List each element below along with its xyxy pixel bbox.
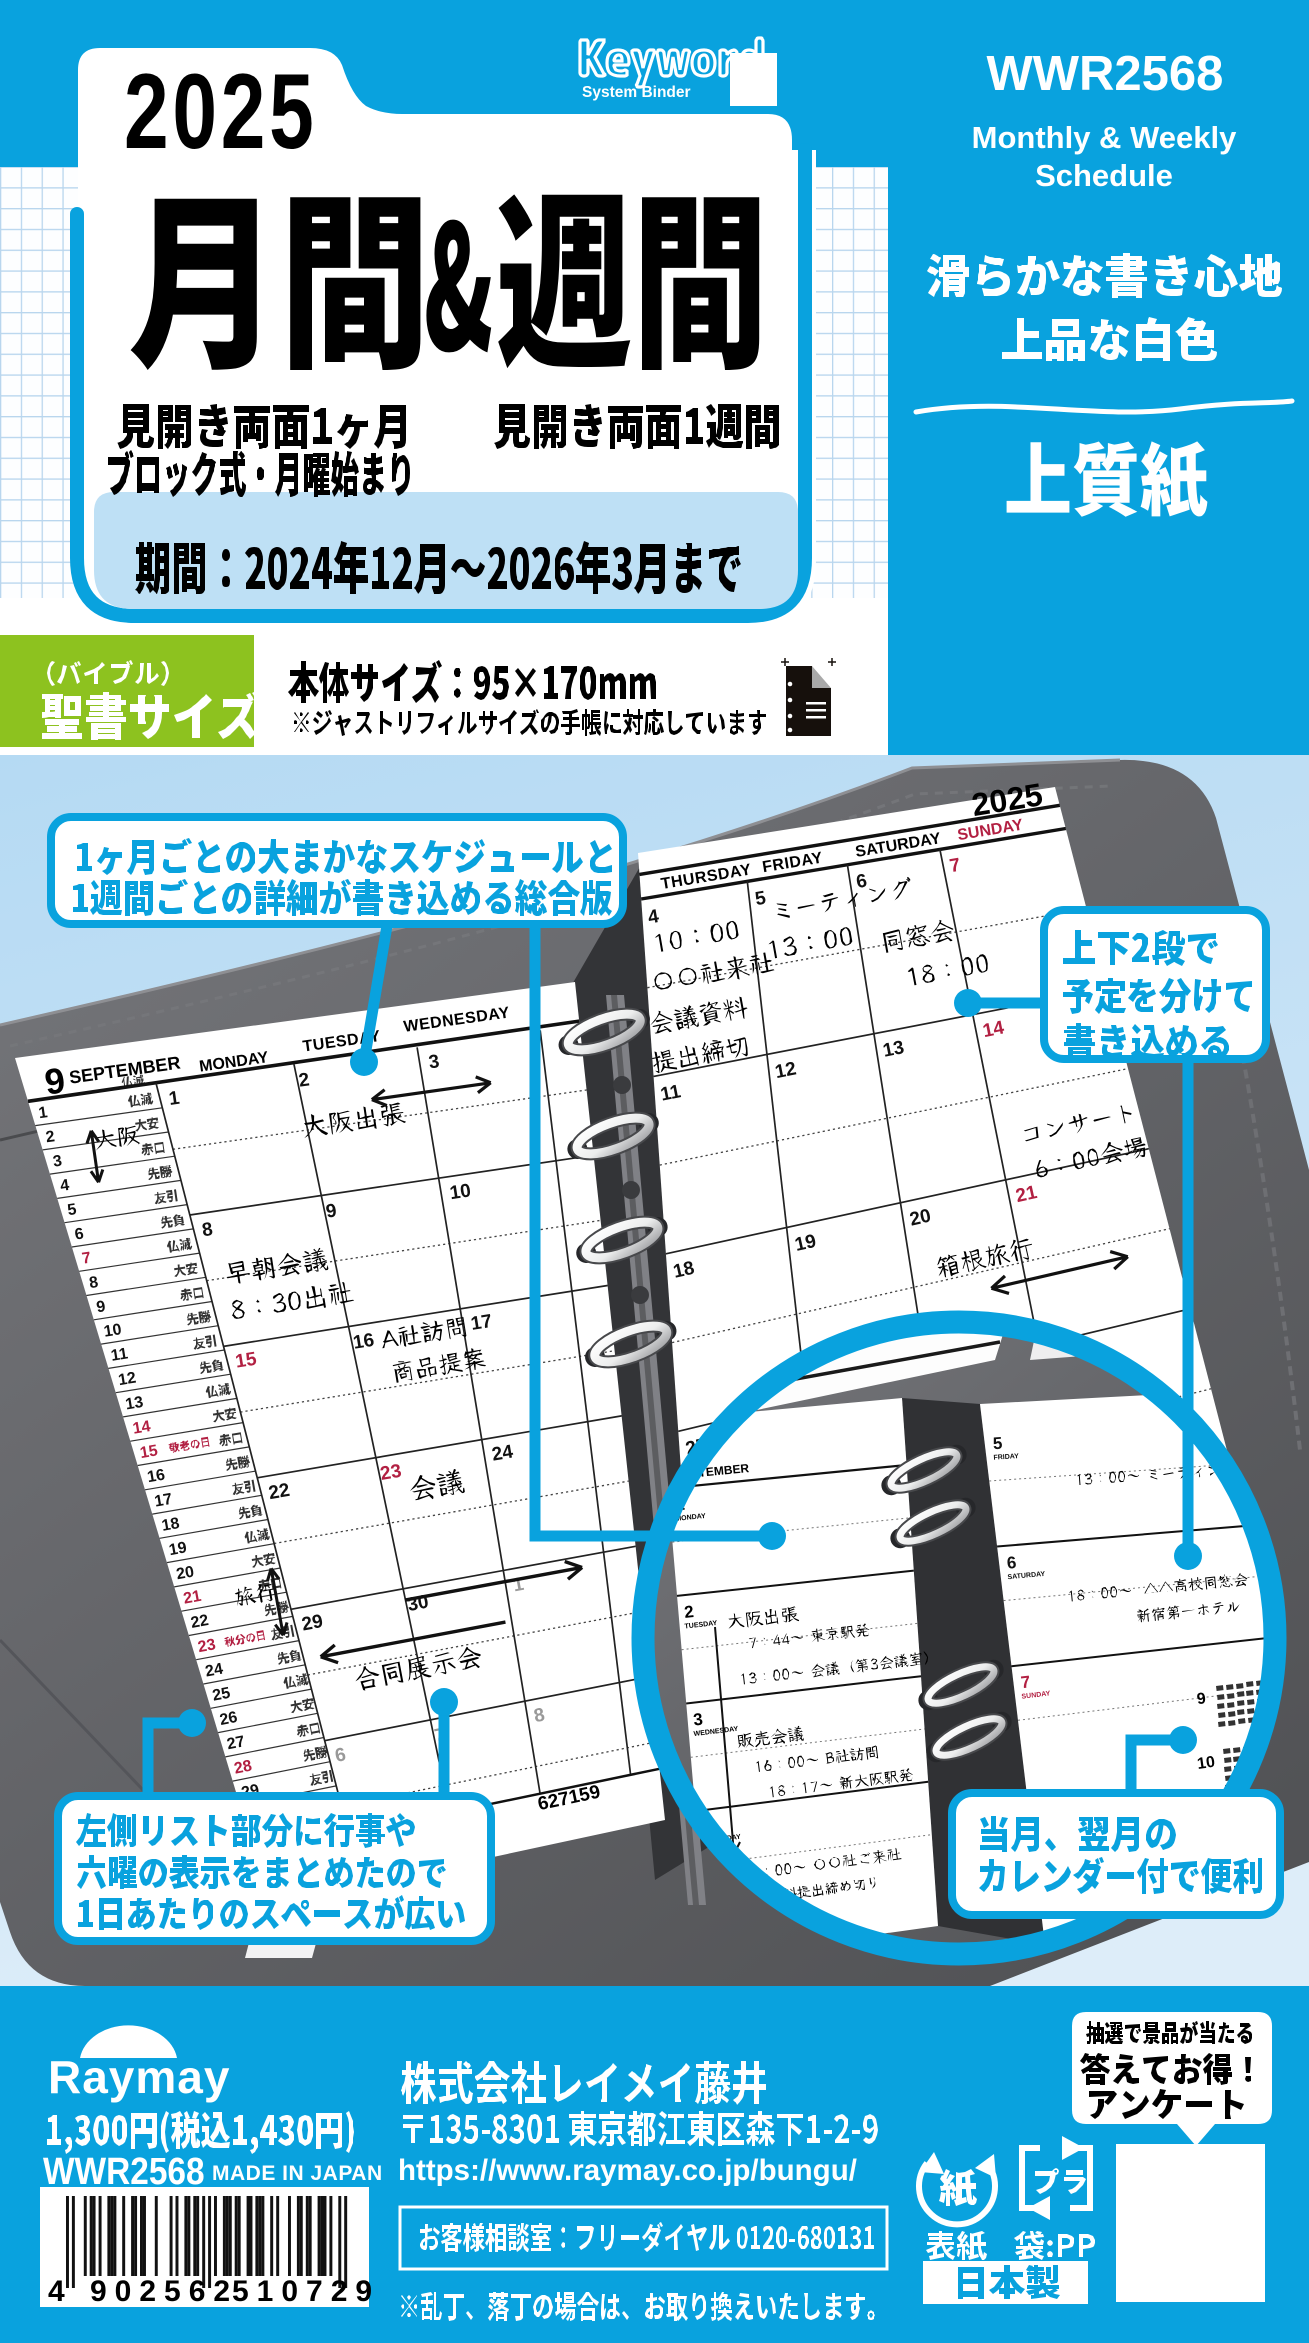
svg-text:21: 21 <box>182 1588 203 1608</box>
svg-text:4: 4 <box>48 2275 65 2308</box>
svg-text:17: 17 <box>153 1491 174 1511</box>
svg-text:13: 13 <box>124 1394 144 1414</box>
svg-text:29: 29 <box>300 1611 325 1635</box>
svg-text:2025: 2025 <box>124 52 318 172</box>
svg-text:22: 22 <box>189 1612 210 1632</box>
svg-text:16: 16 <box>352 1330 376 1354</box>
svg-text:Schedule: Schedule <box>1035 158 1173 193</box>
svg-text:15: 15 <box>139 1442 159 1462</box>
svg-text:Monthly & Weekly: Monthly & Weekly <box>972 120 1237 155</box>
svg-text:16: 16 <box>146 1467 166 1487</box>
svg-text:26: 26 <box>218 1709 239 1729</box>
svg-text:24: 24 <box>490 1441 515 1465</box>
svg-text:14: 14 <box>131 1418 151 1438</box>
svg-text:15: 15 <box>234 1349 259 1373</box>
svg-text:10: 10 <box>448 1180 472 1204</box>
svg-text:10: 10 <box>103 1321 123 1341</box>
svg-text:19: 19 <box>168 1539 189 1559</box>
svg-text:10: 10 <box>1196 1754 1216 1773</box>
svg-text:18: 18 <box>671 1258 696 1283</box>
svg-text:Raymay: Raymay <box>48 2051 230 2103</box>
svg-text:20: 20 <box>175 1563 196 1583</box>
svg-text:12: 12 <box>117 1370 137 1390</box>
svg-text:510729: 510729 <box>232 2275 380 2308</box>
svg-text:https://www.raymay.co.jp/bungu: https://www.raymay.co.jp/bungu/ <box>398 2154 857 2187</box>
svg-text:24: 24 <box>204 1661 225 1681</box>
svg-text:11: 11 <box>110 1345 129 1364</box>
svg-text:23: 23 <box>379 1461 403 1485</box>
svg-text:23: 23 <box>197 1636 218 1656</box>
svg-text:27: 27 <box>225 1733 246 1753</box>
svg-text:WWR2568: WWR2568 <box>43 2150 205 2192</box>
svg-text:22: 22 <box>267 1480 291 1504</box>
svg-text:6: 6 <box>1006 1553 1017 1573</box>
svg-text:19: 19 <box>793 1231 818 1256</box>
svg-text:902562: 902562 <box>90 2275 238 2308</box>
svg-text:28: 28 <box>233 1757 254 1777</box>
svg-text:5: 5 <box>992 1434 1003 1454</box>
svg-text:MADE IN JAPAN: MADE IN JAPAN <box>212 2162 383 2185</box>
svg-text:WWR2568: WWR2568 <box>987 47 1224 101</box>
svg-text:System Binder: System Binder <box>582 84 691 101</box>
svg-text:12: 12 <box>773 1058 798 1083</box>
svg-text:18: 18 <box>160 1515 181 1535</box>
svg-text:14: 14 <box>981 1017 1006 1042</box>
svg-text:13: 13 <box>881 1037 906 1062</box>
svg-text:20: 20 <box>908 1206 933 1231</box>
svg-text:25: 25 <box>211 1685 232 1705</box>
svg-text:17: 17 <box>469 1311 493 1335</box>
